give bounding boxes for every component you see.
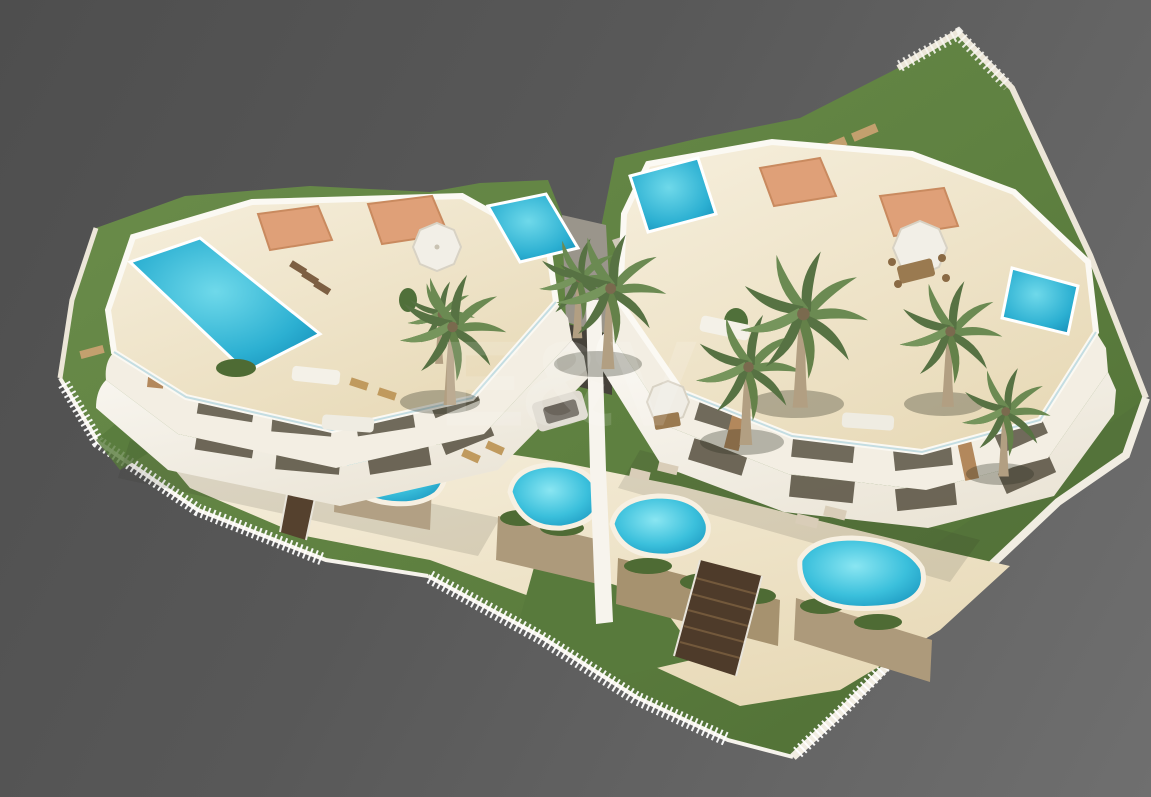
left-roof-parasol [413, 223, 461, 271]
left-roof-plant [216, 359, 256, 377]
ground-pool-4 [800, 538, 924, 608]
watermark: E&V [438, 323, 698, 444]
ground-pool-3 [612, 496, 708, 556]
render-image: E&V [0, 0, 1151, 797]
ground-pool-2 [510, 465, 599, 528]
